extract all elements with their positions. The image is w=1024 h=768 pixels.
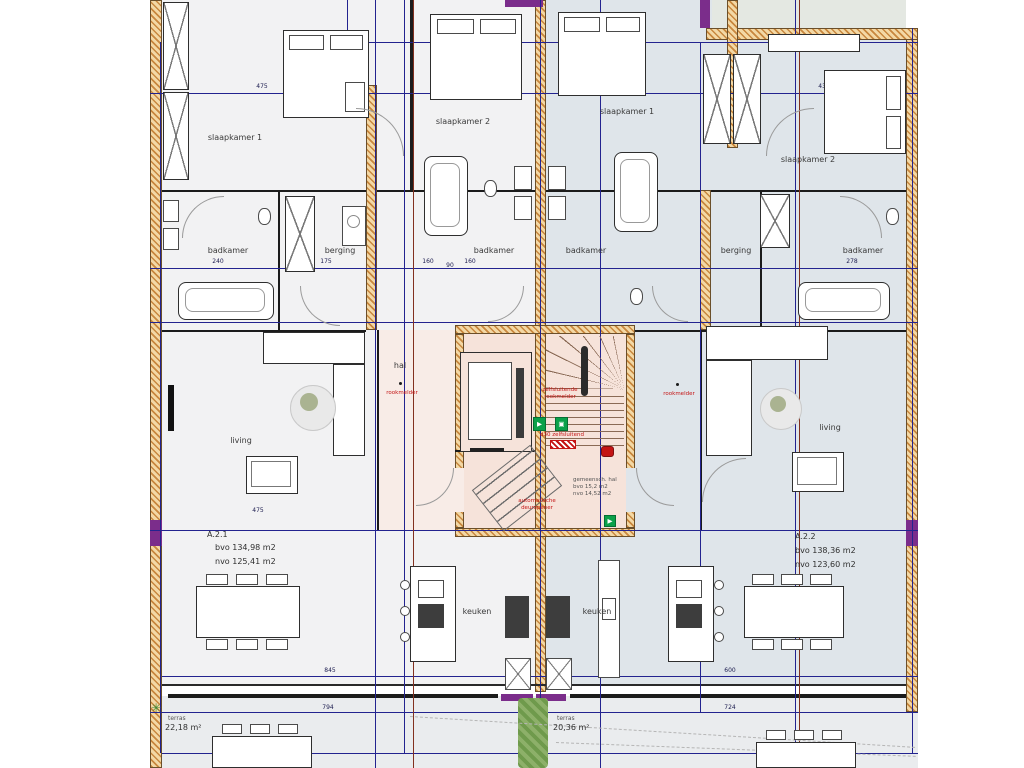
pillow — [886, 116, 901, 149]
room-label-berging-left: berging — [325, 247, 356, 256]
terrace-label-right: terras — [557, 716, 575, 723]
bathtub — [178, 282, 274, 320]
apartment-bvo-a21: bvo 134,98 m2 — [215, 544, 276, 553]
room-label-slaapkamer1-right: slaapkamer 1 — [600, 108, 654, 117]
chair — [266, 574, 288, 585]
bathtub — [798, 282, 890, 320]
chair — [236, 574, 258, 585]
chair — [236, 639, 258, 650]
apartment-nvo-a22: nvo 123,60 m2 — [795, 561, 856, 570]
common-hall-nvo: nvo 14,52 m2 — [573, 491, 611, 498]
toilet — [484, 180, 497, 197]
washbasin — [163, 228, 179, 250]
kitchen-sink — [676, 580, 702, 598]
fire-door-marker — [550, 440, 576, 449]
room-label-slaapkamer2-right: slaapkamer 2 — [781, 156, 835, 165]
shaft — [546, 658, 572, 690]
plant-leaves — [770, 396, 786, 412]
bathtub — [614, 152, 658, 232]
pillow — [606, 17, 640, 32]
armchair — [246, 456, 298, 494]
tree-icon: ✳ — [151, 702, 161, 714]
dim-label: 794 — [322, 705, 333, 711]
dimension-line-h4 — [150, 322, 918, 323]
room-label-hal: hal — [394, 362, 406, 371]
cooktop — [676, 604, 702, 628]
dim-label: 240 — [212, 259, 223, 265]
stair-handrail — [581, 346, 588, 396]
chair — [822, 730, 842, 740]
wardrobe — [285, 196, 315, 272]
dining-table — [744, 586, 844, 638]
annotation-rookmelder-right: rookmelder — [663, 391, 694, 397]
chair — [250, 724, 270, 734]
smoke-detector-dot — [676, 383, 679, 386]
room-label-slaapkamer2-left: slaapkamer 2 — [436, 118, 490, 127]
pillow — [437, 19, 474, 34]
toilet — [630, 288, 643, 305]
dimension-line-h2 — [150, 93, 918, 94]
room-label-berging-right: berging — [721, 247, 752, 256]
washbasin — [163, 200, 179, 222]
room-label-badkamer-left1: badkamer — [208, 247, 248, 256]
terrace-edge-left — [168, 694, 498, 698]
armchair — [792, 452, 844, 492]
room-label-keuken-left: keuken — [463, 608, 492, 617]
sofa — [706, 360, 752, 456]
sofa — [263, 332, 365, 364]
washbasin — [548, 166, 566, 190]
kitchen-sink — [418, 580, 444, 598]
kitchen-counter — [546, 596, 570, 638]
emergency-exit-icon: ▶ — [604, 515, 616, 527]
terrace-area-right: 20,36 m² — [553, 724, 589, 733]
dimension-line-v9 — [912, 28, 913, 753]
annotation-rookmelder-left: rookmelder — [386, 390, 417, 396]
core-door-opening-right — [626, 468, 635, 512]
tv-icon — [168, 385, 174, 431]
chair — [222, 724, 242, 734]
chair — [810, 639, 832, 650]
kitchen-counter — [505, 596, 529, 638]
pillow — [289, 35, 324, 50]
room-label-keuken-right: keuken — [583, 608, 612, 617]
elevator-door — [470, 448, 504, 452]
chair — [206, 574, 228, 585]
sofa — [333, 364, 365, 456]
shaft — [505, 658, 531, 690]
wardrobe — [760, 194, 790, 248]
terrace-edge-right — [570, 694, 906, 698]
terrace-table — [212, 736, 312, 768]
wardrobe — [163, 92, 189, 180]
wall-bath-top-right — [711, 190, 906, 192]
roof-terrace-top-right — [712, 0, 906, 28]
washbasin — [514, 166, 532, 190]
chair — [794, 730, 814, 740]
washbasin — [514, 196, 532, 220]
dim-label: 90 — [446, 263, 454, 269]
chair — [752, 639, 774, 650]
bar-stool — [400, 606, 410, 616]
dimension-line-v1 — [160, 42, 161, 753]
dim-label: 175 — [320, 259, 331, 265]
floor-plan: 475 300 45 435 240 175 160 90 160 278 47… — [0, 0, 1024, 768]
wall-divider-badkamer-berging-left — [278, 190, 280, 330]
annotation-zelfsluitende: zelfsluitende — [542, 387, 577, 393]
chair — [781, 574, 803, 585]
washbasin — [548, 196, 566, 220]
room-label-badkamer-right2: badkamer — [843, 247, 883, 256]
column-top-right — [700, 0, 710, 28]
emergency-exit-icon: ▶ — [533, 417, 546, 431]
chair — [781, 639, 803, 650]
smoke-detector-dot — [399, 382, 402, 385]
apartment-id-a21: A.2.1 — [207, 531, 228, 540]
terrace-table — [756, 742, 856, 768]
dimension-line-h3 — [150, 268, 918, 269]
fire-alarm-icon — [601, 446, 614, 457]
hedge — [518, 698, 548, 768]
plant-leaves — [300, 393, 318, 411]
dining-table — [196, 586, 300, 638]
skylight — [768, 34, 860, 52]
emergency-exit-icon: ▣ — [555, 417, 568, 431]
dimension-line-h5 — [150, 530, 918, 531]
sofa — [706, 326, 828, 360]
chair — [766, 730, 786, 740]
dim-label: 475 — [256, 84, 267, 90]
dim-label: 160 — [422, 259, 433, 265]
elevator-counterweight — [516, 368, 524, 438]
dim-label: 475 — [252, 508, 263, 514]
pillow — [886, 76, 901, 110]
wardrobe — [733, 54, 761, 144]
dim-label: 278 — [846, 259, 857, 265]
apartment-bvo-a22: bvo 138,36 m2 — [795, 547, 856, 556]
common-hall-name: gemeensch. hal — [573, 477, 617, 484]
pillow — [564, 17, 600, 32]
wardrobe — [703, 54, 731, 144]
bar-stool — [714, 606, 724, 616]
wall-core-top — [455, 325, 635, 334]
bar-stool — [714, 632, 724, 642]
room-label-badkamer-right1: badkamer — [566, 247, 606, 256]
annotation-deuropener: deuropener — [521, 505, 553, 511]
bar-stool — [400, 632, 410, 642]
dim-label: 160 — [464, 259, 475, 265]
apartment-id-a22: A.2.2 — [795, 533, 816, 542]
chair — [266, 639, 288, 650]
chair — [810, 574, 832, 585]
dim-label: 724 — [724, 705, 735, 711]
annotation-rookmelder-core: rookmelder — [544, 394, 575, 400]
chair — [278, 724, 298, 734]
dim-label: 845 — [324, 668, 335, 674]
annotation-automatische: automatische — [518, 498, 556, 504]
chair — [752, 574, 774, 585]
terrace-area-left: 22,18 m² — [165, 724, 201, 733]
room-label-living-right: living — [819, 424, 841, 433]
wall-hal-left — [377, 330, 379, 530]
annotation-d30: d30 zelfsluitend — [540, 432, 584, 438]
wall-interior-right-apt — [700, 190, 711, 330]
dimension-line-v5 — [540, 0, 541, 768]
chair — [206, 639, 228, 650]
bar-stool — [714, 580, 724, 590]
room-label-slaapkamer1-left: slaapkamer 1 — [208, 134, 262, 143]
core-door-opening-left — [455, 468, 464, 512]
wall-bath-top-left — [162, 190, 366, 192]
toilet — [258, 208, 271, 225]
pillow — [330, 35, 363, 50]
room-label-living-left: living — [230, 437, 252, 446]
dim-label: 600 — [724, 668, 735, 674]
bar-stool — [400, 580, 410, 590]
bathtub — [424, 156, 468, 236]
toilet — [886, 208, 899, 225]
common-hall-bvo: bvo 15,2 m2 — [573, 484, 608, 491]
cooktop — [418, 604, 444, 628]
apartment-nvo-a21: nvo 125,41 m2 — [215, 558, 276, 567]
elevator-car — [468, 362, 512, 440]
terrace-label-left: terras — [168, 716, 186, 723]
pillow — [480, 19, 516, 34]
washing-machine — [342, 206, 366, 246]
wardrobe — [163, 2, 189, 90]
room-label-badkamer-left2: badkamer — [474, 247, 514, 256]
column-top-center — [505, 0, 543, 7]
